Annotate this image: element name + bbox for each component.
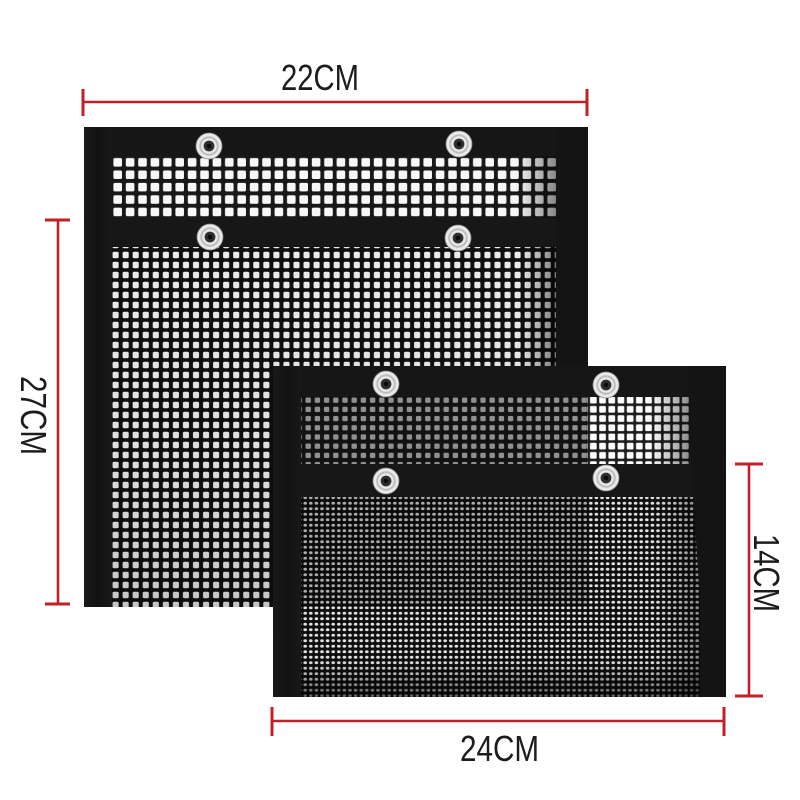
svg-text:24CM: 24CM [460, 728, 539, 769]
svg-text:22CM: 22CM [281, 57, 359, 98]
svg-text:27CM: 27CM [13, 376, 54, 455]
svg-text:14CM: 14CM [746, 534, 787, 612]
